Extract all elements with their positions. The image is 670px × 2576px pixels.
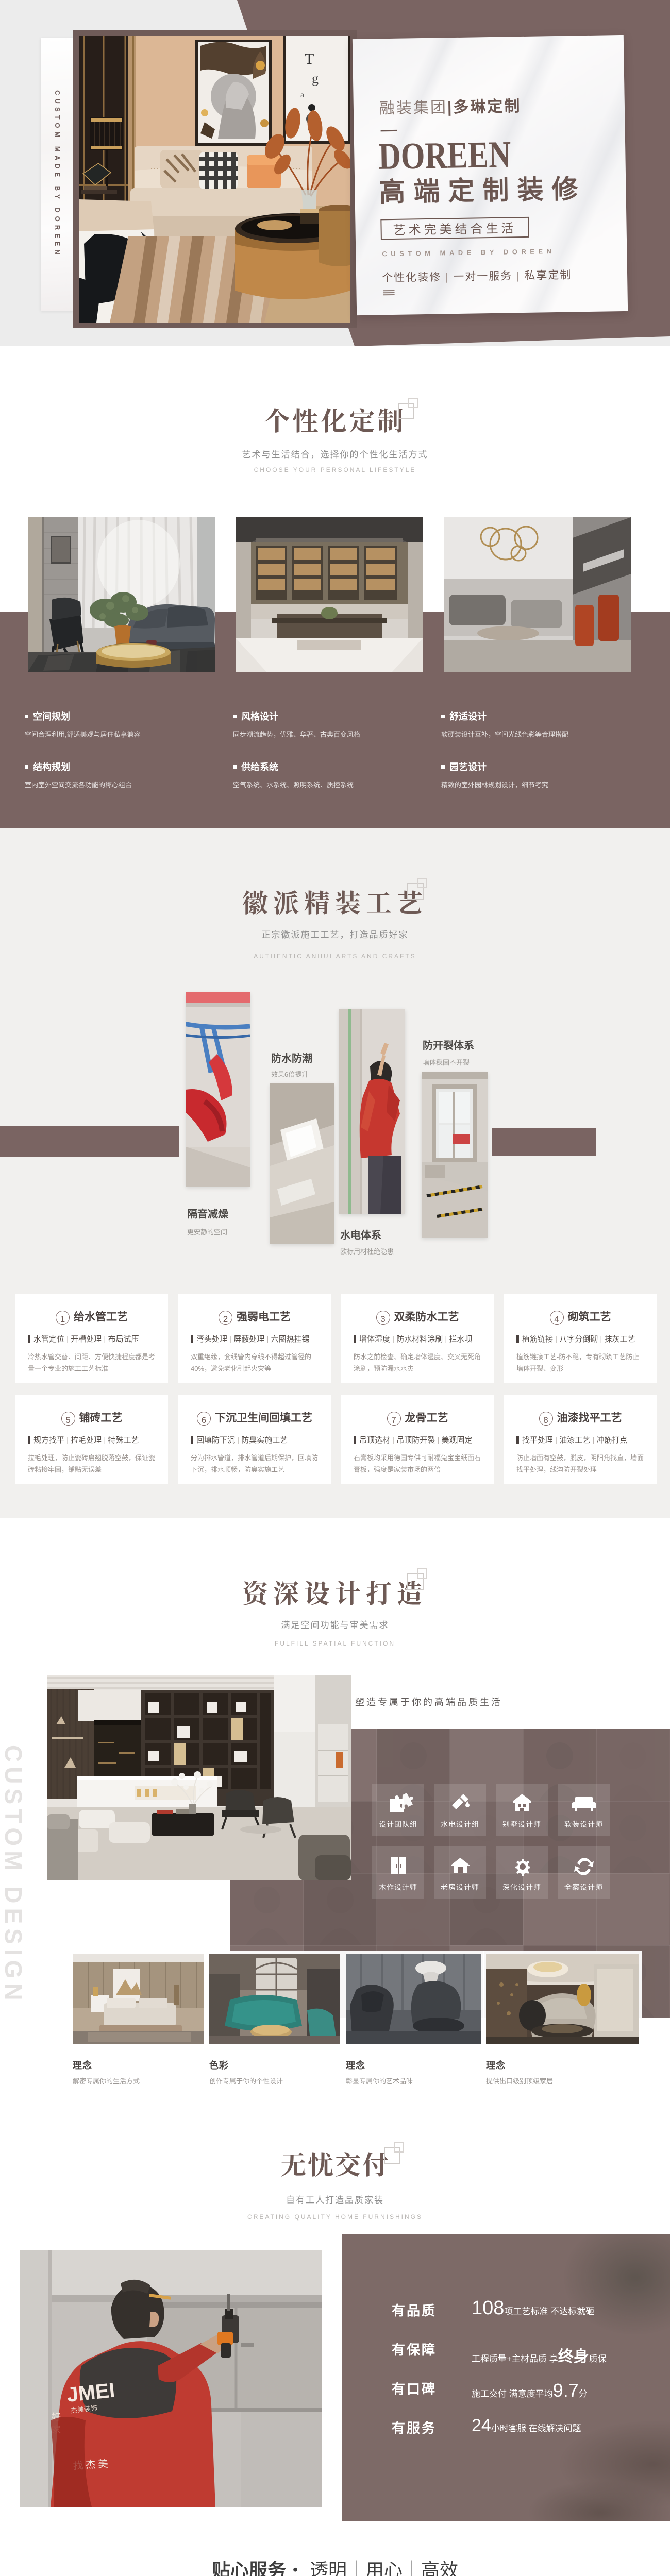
svg-text:g: g — [312, 71, 319, 86]
svg-text:T: T — [305, 50, 314, 67]
svg-text:a: a — [300, 91, 304, 99]
